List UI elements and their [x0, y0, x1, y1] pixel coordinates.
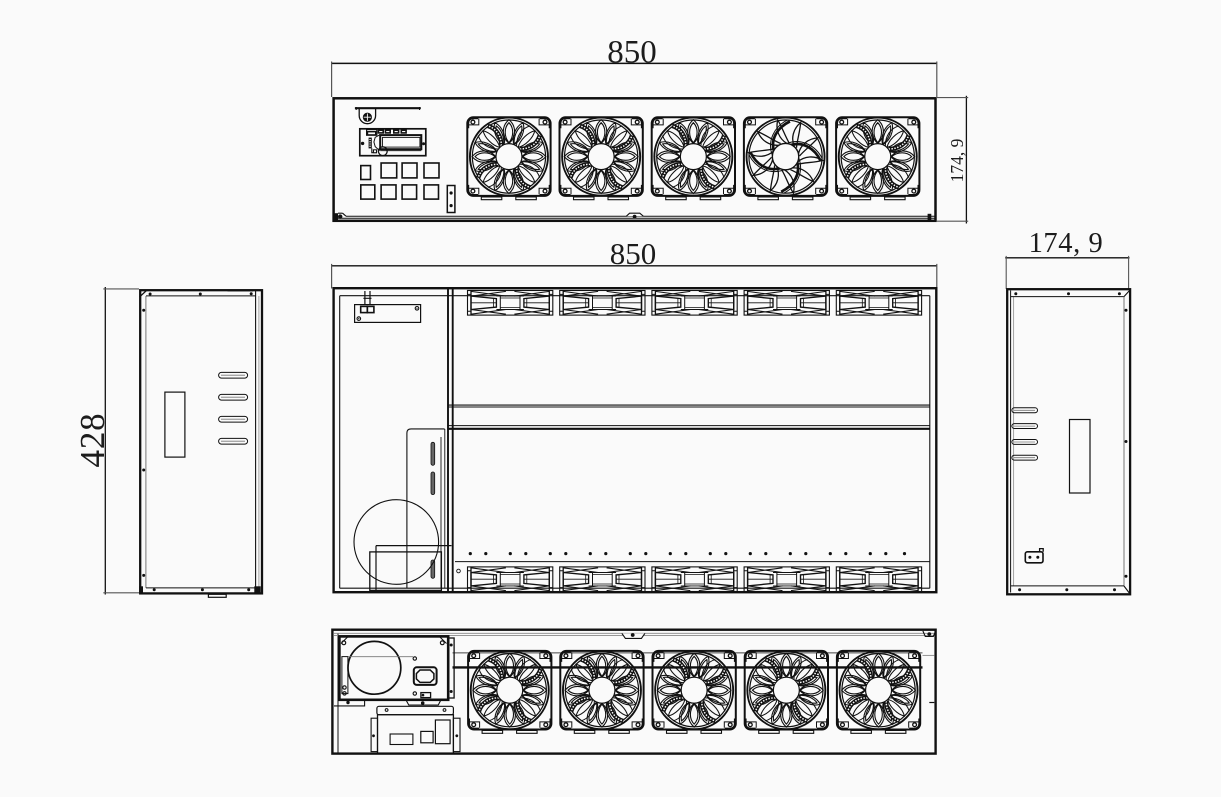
svg-text:850: 850: [607, 34, 657, 70]
svg-text:174, 9: 174, 9: [947, 138, 967, 182]
svg-text:174, 9: 174, 9: [1029, 228, 1104, 259]
svg-text:428: 428: [73, 413, 112, 468]
